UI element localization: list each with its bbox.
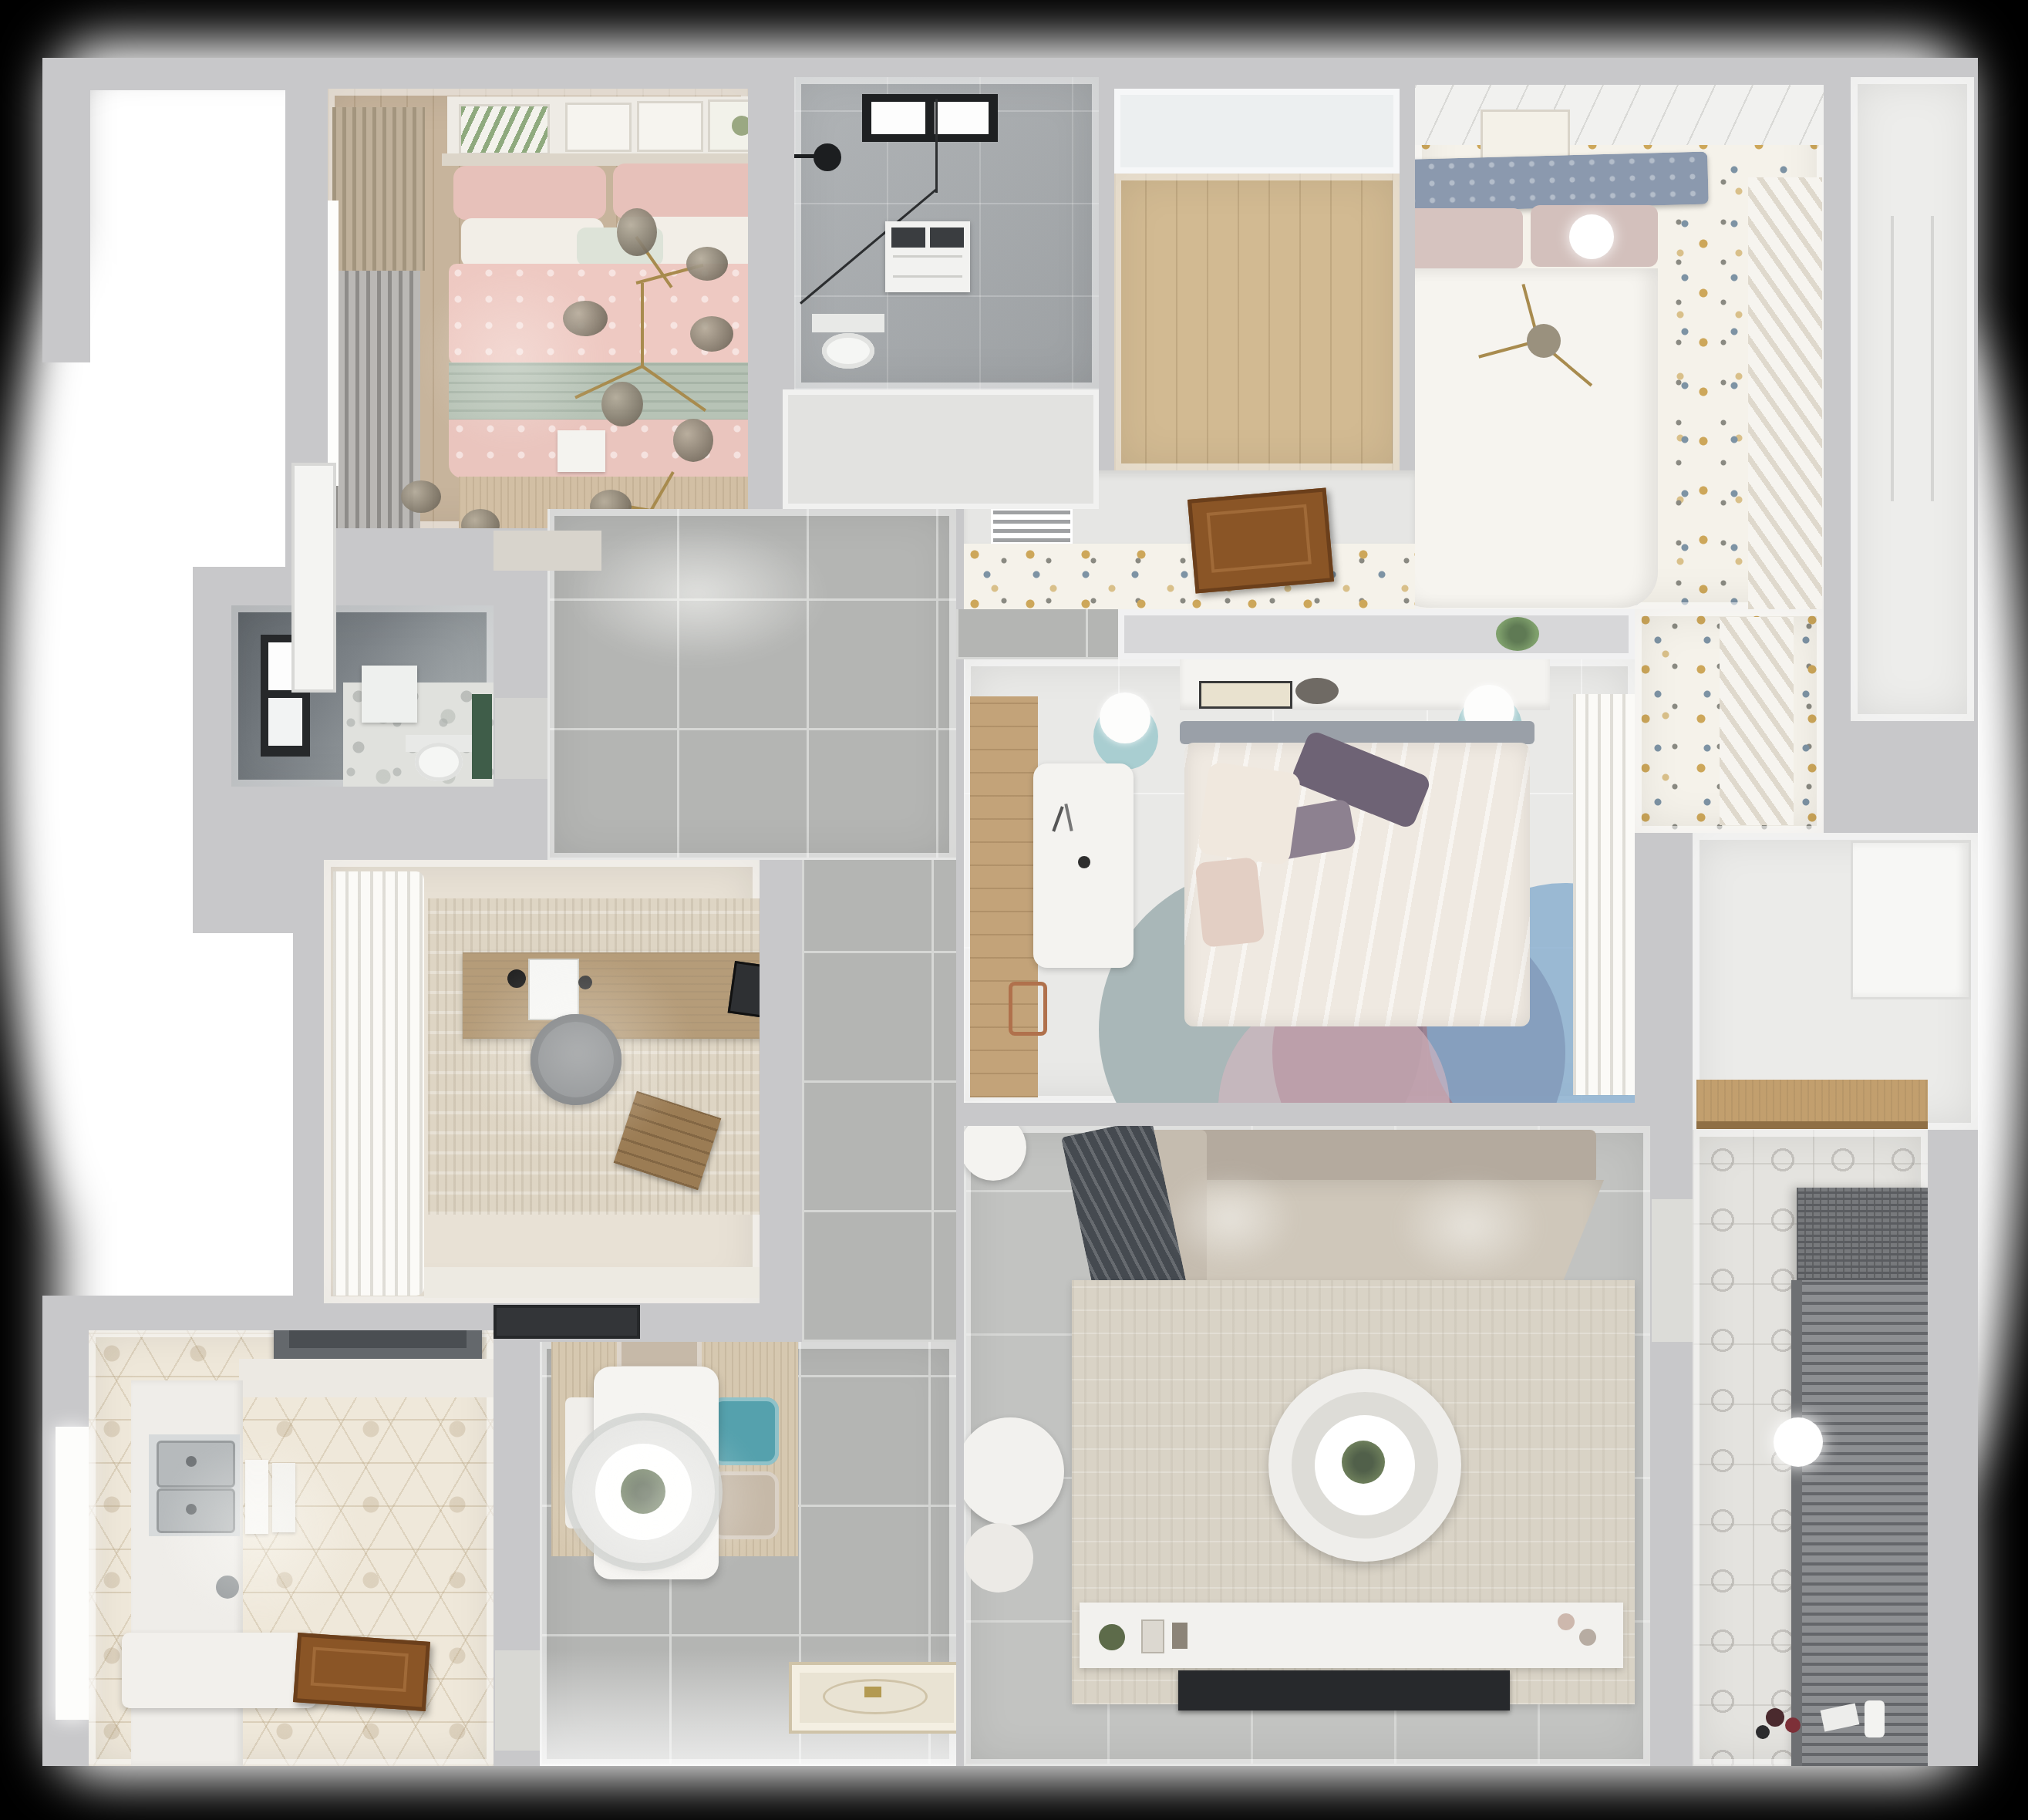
shower-head-icon: [814, 143, 841, 171]
shower-arm: [794, 154, 817, 158]
master-art-frame-green: [459, 104, 550, 155]
master-foot-tray: [558, 430, 605, 472]
b3-pillow-blush: [1194, 857, 1265, 948]
chandelier-globe: [401, 480, 441, 513]
shower-glass-edge-2: [935, 99, 938, 193]
b2-sprig-globe: [1527, 324, 1561, 358]
balcony-rack-rail: [1791, 1280, 1802, 1766]
room-office: [324, 860, 760, 1303]
office-light: [463, 952, 694, 1153]
balcony-ceiling-light: [1774, 1417, 1823, 1467]
chandelier-globe: [690, 316, 733, 352]
console-deco-box: [1141, 1619, 1164, 1653]
door-gap-bath2: [495, 698, 547, 779]
office-doormat: [494, 1305, 640, 1339]
toilet-bowl: [822, 333, 874, 369]
halo-glow-left: [0, 247, 200, 1218]
office-window-sill: [424, 1267, 760, 1298]
washer-panel: [891, 228, 925, 248]
b2-curtains: [1748, 177, 1822, 609]
storage-wood-shelf: [1696, 1080, 1928, 1127]
b2-wardrobe-curtain: [1720, 617, 1794, 825]
b3-desk-knob: [1078, 856, 1090, 868]
ensuite-window-pane: [871, 102, 925, 134]
master-roman-shade: [332, 107, 425, 271]
dining-light: [547, 1411, 763, 1589]
master-window: [328, 201, 339, 486]
balcony-toy: [1785, 1717, 1801, 1733]
b3-desk: [1033, 763, 1134, 968]
b3-pillow-white: [1197, 761, 1302, 866]
b3-ledge-wall: [1118, 609, 1635, 659]
b2-ceiling-light: [1569, 214, 1614, 259]
corridor-main: [802, 860, 956, 1342]
chandelier-globe: [601, 382, 643, 426]
leaf-motif: [732, 116, 748, 136]
room-passage: [964, 544, 1415, 609]
balcony-bottle: [1865, 1700, 1885, 1737]
b3-wardrobe-floor: [970, 696, 1038, 1097]
service-window-line: [1931, 216, 1934, 501]
b3-desk-pens: [1052, 806, 1063, 831]
corridor-bedroom3-gap: [956, 609, 1118, 659]
service-window-line: [1891, 216, 1894, 501]
console-deco-cup: [1558, 1613, 1575, 1630]
console-deco-cup: [1579, 1629, 1596, 1646]
room-living: [964, 1126, 1650, 1766]
door-panel-inset: [311, 1647, 409, 1693]
room-bedroom-2-wardrobe: [1635, 609, 1824, 833]
door-panel-inset: [1207, 504, 1312, 573]
chandelier-rod: [641, 283, 644, 368]
console-plant: [1099, 1624, 1125, 1650]
armchair-white: [964, 1417, 1064, 1525]
storage-door: [1851, 841, 1971, 999]
washer-label-lines: [893, 275, 962, 278]
ensuite-window-pane: [935, 102, 989, 134]
open-door-bedroom2: [1187, 487, 1334, 593]
door-gap-kitchen: [495, 1650, 540, 1751]
door-gap-balcony: [1652, 1199, 1693, 1342]
b2-headboard: [1415, 152, 1709, 213]
bath2-toilet-bowl: [415, 743, 463, 781]
room-kitchen: [89, 1330, 494, 1766]
storage-shelf-edge: [1696, 1121, 1928, 1129]
b3-books: [1199, 681, 1292, 709]
balcony-toy: [1766, 1708, 1784, 1727]
b2-duvet: [1415, 268, 1658, 608]
b3-ledge-plant: [1496, 617, 1539, 651]
kitchen-light: [158, 1438, 359, 1623]
corridor-light: [571, 524, 825, 663]
balcony-rack-woven-top: [1797, 1188, 1928, 1280]
b3-bed-headboard: [1180, 721, 1534, 744]
kitchen-counter-top: [239, 1359, 494, 1397]
chandelier-globe: [686, 247, 728, 281]
washer-panel: [930, 228, 964, 248]
chandelier-globe: [617, 208, 657, 256]
bath2-green-shelf: [472, 694, 492, 779]
washing-machine: [885, 221, 970, 292]
master-light: [420, 266, 605, 451]
b3-bowl: [1295, 678, 1339, 704]
master-art-frame-2: [565, 103, 632, 152]
open-door-kitchen: [293, 1633, 430, 1711]
corridor-upper: [547, 509, 956, 860]
master-art-frame-leaf: [708, 99, 748, 152]
b3-desk-pens: [1064, 804, 1073, 831]
room-bedroom-2: [1415, 85, 1824, 609]
b2-ceiling-strip: [1415, 85, 1824, 145]
tv-panel: [1178, 1670, 1510, 1710]
office-curtains: [333, 871, 424, 1296]
kitchen-hood-vent: [289, 1330, 467, 1348]
room-ensuite-bathroom: [794, 77, 1099, 389]
media-console: [1080, 1603, 1623, 1668]
floor-plan-stage: [0, 0, 2028, 1820]
master-art-frame-3: [637, 101, 703, 152]
master-pillow-pink-1: [453, 166, 606, 220]
side-stool: [964, 1126, 1026, 1181]
room-service-strip: [1851, 77, 1974, 721]
balcony-toy: [1756, 1725, 1770, 1739]
wall-stub-top-left-v: [42, 58, 90, 362]
room-small-bathroom: [231, 605, 494, 787]
b3-curtains: [1573, 694, 1635, 1095]
toilet-tank: [812, 314, 884, 332]
kitchen-island-block: [122, 1633, 316, 1708]
b3-lamp-left: [1100, 693, 1150, 743]
bath2-window-pane: [268, 698, 302, 746]
room-bedroom-3: [964, 659, 1635, 1103]
kitchen-window: [56, 1427, 89, 1720]
bath2-shower-tray: [362, 666, 417, 723]
room-storage: [1693, 833, 1978, 1130]
chandelier-globe: [673, 419, 713, 462]
hall-dining-entry: [540, 1342, 956, 1766]
room-balcony: [1693, 1130, 1928, 1766]
living-light-2: [1396, 1172, 1542, 1280]
b3-desk-chair-copper: [1009, 982, 1047, 1036]
master-balcony-door: [291, 463, 336, 693]
console-deco-box: [1172, 1623, 1187, 1649]
room-closet-hall: [1114, 174, 1400, 470]
room-master-bedroom: [328, 89, 748, 528]
b3-bed: [1180, 721, 1534, 1030]
hall-upper-landing: [783, 389, 1099, 509]
entry-mat: [789, 1662, 956, 1734]
b2-art-frame: [1481, 110, 1570, 160]
coffee-table-plant: [1342, 1441, 1385, 1484]
washer-label-lines: [893, 255, 962, 258]
room-closet-upper: [1114, 89, 1400, 174]
living-light-1: [1164, 1168, 1295, 1269]
b2-pillow-1: [1415, 208, 1523, 268]
door-gap-master: [494, 531, 601, 571]
entry-mat-clasp: [864, 1687, 881, 1697]
ottoman-white: [964, 1523, 1033, 1592]
